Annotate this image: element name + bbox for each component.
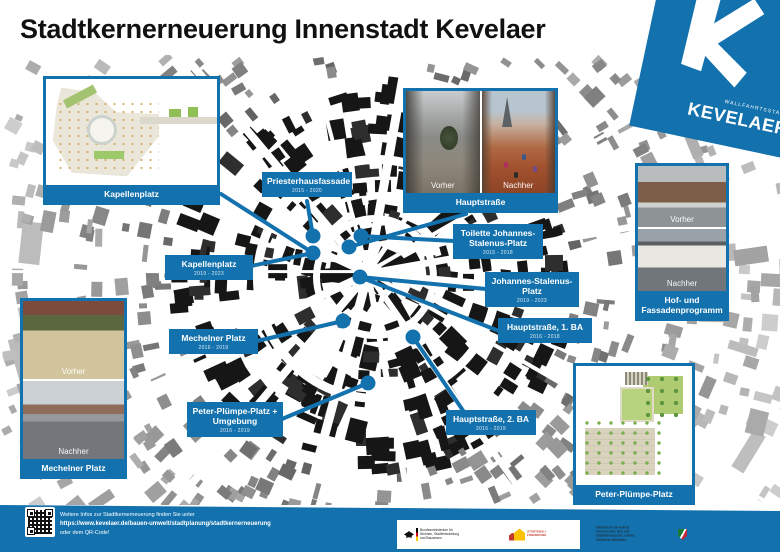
footer-bar: Weitere Infos zur Stadtkernerneuerung fi…	[0, 498, 780, 552]
peter-pluempe-plan-drawing	[576, 366, 692, 485]
hof-before-photo: Vorher	[638, 166, 726, 227]
inset-caption: Peter-Plümpe-Platz	[576, 485, 692, 502]
footer-info-line1: Weitere Infos zur Stadtkernerneuerung fi…	[60, 511, 271, 520]
before-label: Vorher	[23, 367, 124, 376]
map-label-hauptstrasse-2ba: Hauptstraße, 2. BA 2016 - 2019	[446, 410, 536, 435]
inset-caption: Mechelner Platz	[23, 459, 124, 476]
hauptstrasse-after-photo: Nachher	[482, 91, 556, 193]
german-flag-stripe	[416, 528, 418, 541]
staedtebaufoerderung-text: STÄDTEBAU-FÖRDERUNG	[527, 531, 557, 538]
after-label: Nachher	[638, 279, 726, 288]
inset-hauptstrasse-photos: Vorher Nachher Hauptstraße	[403, 88, 558, 213]
inset-peter-pluempe-platz-plan: Peter-Plümpe-Platz	[573, 363, 695, 505]
inset-hof-und-fassadenprogramm: Vorher Nachher Hof- und Fassadenprogramm	[635, 163, 729, 321]
nrw-ministry-logo: Ministerium für Heimat, Kommunales, Bau …	[596, 520, 687, 549]
hauptstrasse-before-photo: Vorher	[406, 91, 480, 193]
before-label: Vorher	[638, 215, 726, 224]
footer-info-text: Weitere Infos zur Stadtkernerneuerung fi…	[60, 511, 271, 537]
bund-ministry-text: Bundesministerium für Wohnen, Stadtentwi…	[420, 529, 464, 541]
mechelner-before-photo: Vorher	[23, 301, 124, 379]
before-label: Vorher	[406, 181, 480, 190]
map-label-mechelner-platz: Mechelner Platz 2016 - 2019	[169, 329, 258, 354]
yellow-house-icon	[514, 529, 525, 541]
footer-info-line3: oder dem QR-Code!	[60, 529, 271, 538]
map-label-hauptstrasse-1ba: Hauptstraße, 1. BA 2016 - 2018	[498, 318, 592, 343]
kapellenplatz-plan-drawing	[46, 79, 217, 185]
inset-caption: Kapellenplatz	[46, 185, 217, 202]
bund-ministry-logo: Bundesministerium für Wohnen, Stadtentwi…	[404, 524, 500, 546]
after-label: Nachher	[23, 447, 124, 456]
inset-kapellenplatz-plan: Kapellenplatz	[43, 76, 220, 205]
inset-caption: Hauptstraße	[406, 193, 555, 210]
funding-logos-box: Bundesministerium für Wohnen, Stadtentwi…	[397, 520, 580, 549]
mechelner-after-photo: Nachher	[23, 381, 124, 459]
page-title: Stadtkernerneuerung Innenstadt Kevelaer	[20, 14, 545, 45]
hof-after-photo: Nachher	[638, 229, 726, 290]
nrw-ministry-text: Ministerium für Heimat, Kommunales, Bau …	[596, 527, 640, 543]
poster: Stadtkernerneuerung Innenstadt Kevelaer …	[0, 0, 780, 552]
staedtebaufoerderung-logo: STÄDTEBAU-FÖRDERUNG	[509, 527, 587, 541]
federal-eagle-icon	[404, 530, 414, 540]
nrw-coat-of-arms-icon	[678, 529, 687, 540]
inset-caption: Hof- und Fassadenprogramm	[638, 291, 726, 318]
map-label-johannes-stalenus-platz: Johannes-Stalenus-Platz 2019 - 2023	[485, 272, 579, 307]
inset-mechelner-platz-photos: Vorher Nachher Mechelner Platz	[20, 298, 127, 479]
map-label-toilette-johannes-stalenus-platz: Toilette Johannes-Stalenus-Platz 2015 - …	[453, 224, 543, 259]
qr-code-icon	[25, 507, 55, 537]
after-label: Nachher	[482, 181, 556, 190]
map-label-priesterhausfassade: Priesterhausfassade 2015 - 2020	[262, 172, 352, 197]
footer-info-url: https://www.kevelaer.de/bauen-umwelt/sta…	[60, 520, 271, 529]
map-label-kapellenplatz: Kapellenplatz 2019 - 2023	[165, 255, 253, 280]
map-label-peter-pluempe-platz-umgebung: Peter-Plümpe-Platz + Umgebung 2016 - 201…	[187, 402, 283, 437]
